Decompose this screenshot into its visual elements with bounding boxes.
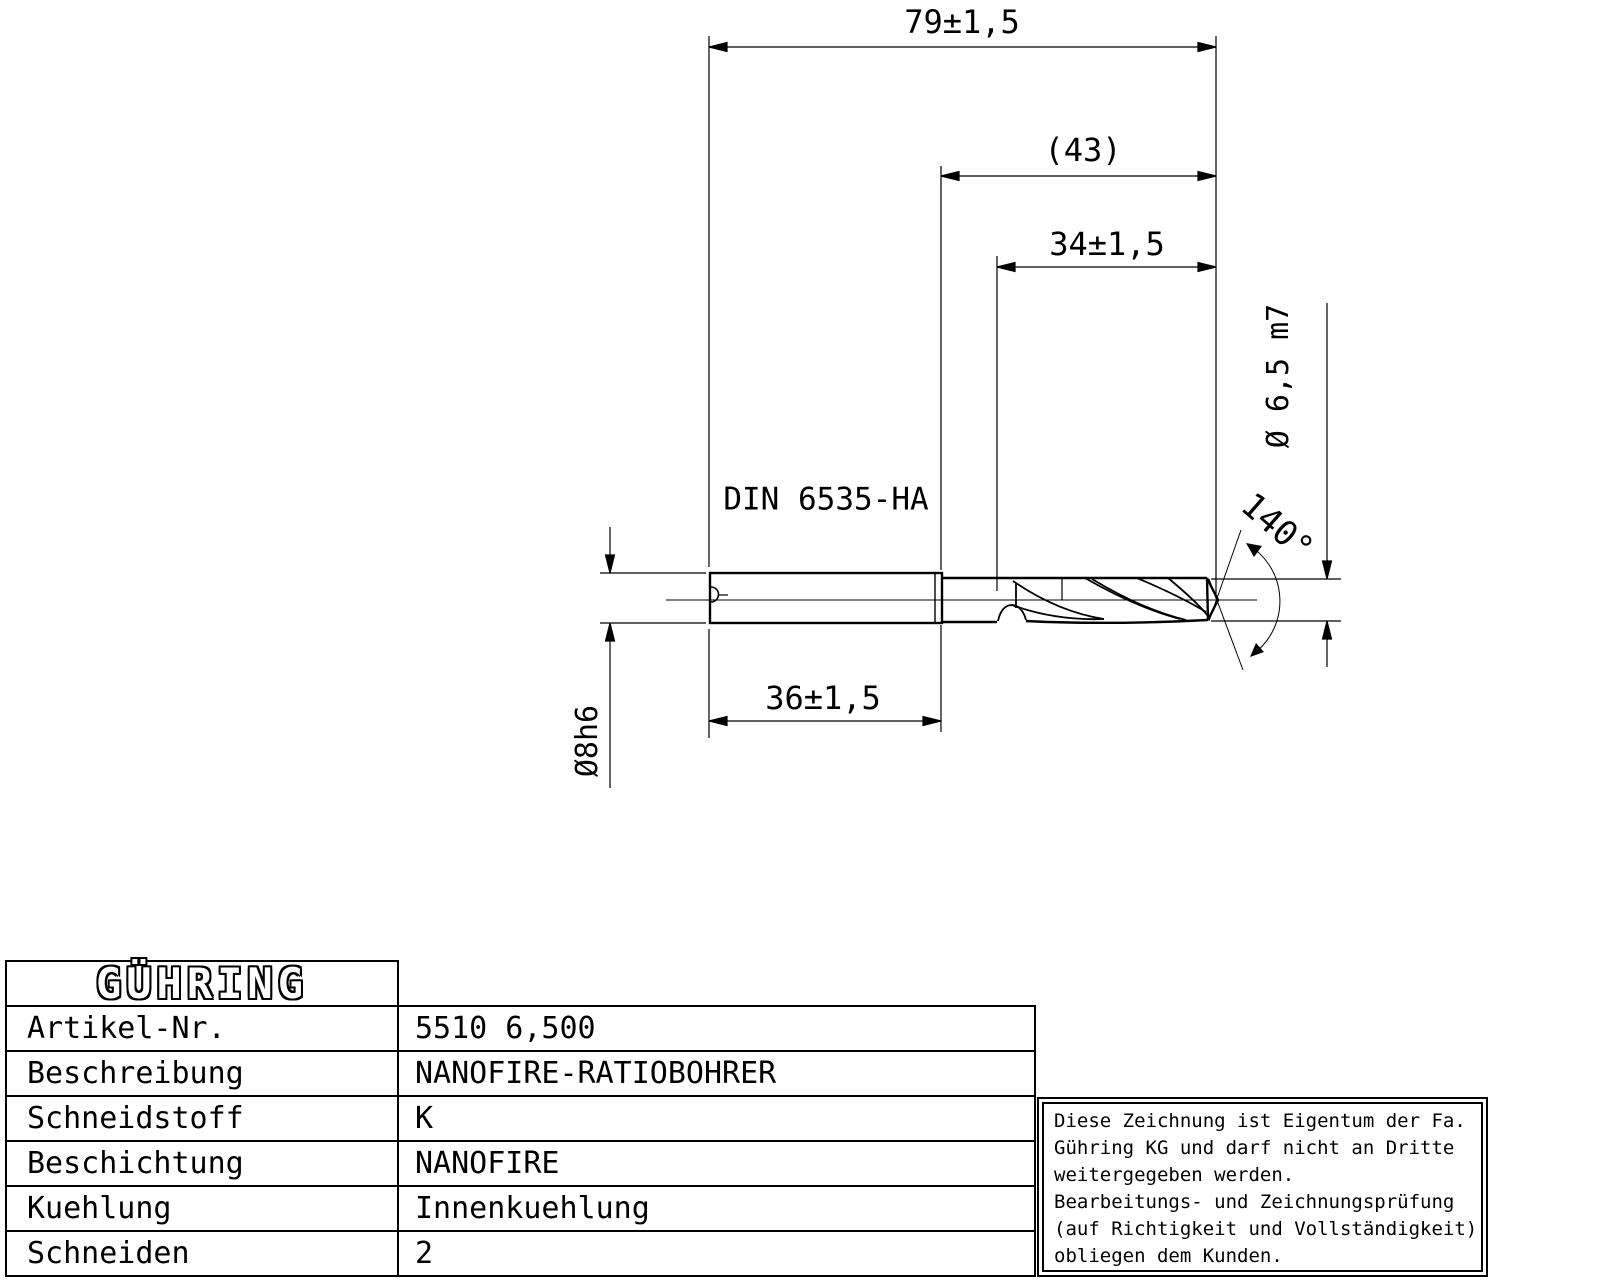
logo-cell: GÜHRING — [5, 960, 399, 1005]
note-line: weitergegeben werden. — [1054, 1162, 1481, 1189]
dim-label-shank-length: 36±1,5 — [765, 682, 881, 714]
note-line: Bearbeitungs- und Zeichnungsprüfung — [1054, 1189, 1481, 1216]
table-row: Kuehlung Innenkuehlung — [7, 1185, 1034, 1230]
guehring-logo: GÜHRING — [96, 959, 308, 1008]
row-label: Beschreibung — [7, 1052, 399, 1095]
legal-note-inner: Diese Zeichnung ist Eigentum der Fa. Güh… — [1042, 1102, 1483, 1272]
row-value: K — [399, 1097, 1034, 1140]
dimension-cutting-dia — [1323, 303, 1332, 667]
dim-label-cutting-diameter: Ø 6,5 m7 — [1264, 304, 1294, 449]
dim-label-flute-length: 34±1,5 — [1049, 228, 1165, 260]
shank-standard-label: DIN 6535-HA — [723, 485, 928, 516]
spec-table: Artikel-Nr. 5510 6,500 Beschreibung NANO… — [5, 1005, 1036, 1277]
row-value: 5510 6,500 — [399, 1007, 1034, 1050]
dimension-34 — [997, 263, 1216, 272]
extension-lines — [600, 36, 1341, 738]
dimension-43 — [941, 172, 1216, 181]
dimension-36 — [709, 717, 941, 726]
dimension-79 — [709, 43, 1216, 52]
row-value: NANOFIRE — [399, 1142, 1034, 1185]
table-row: Artikel-Nr. 5510 6,500 — [7, 1007, 1034, 1050]
legal-note-box: Diese Zeichnung ist Eigentum der Fa. Güh… — [1037, 1097, 1488, 1277]
table-row: Schneidstoff K — [7, 1095, 1034, 1140]
note-line: Gühring KG und darf nicht an Dritte — [1054, 1135, 1481, 1162]
note-line: obliegen dem Kunden. — [1054, 1243, 1481, 1270]
note-line: (auf Richtigkeit und Vollständigkeit) — [1054, 1216, 1481, 1243]
table-row: Beschichtung NANOFIRE — [7, 1140, 1034, 1185]
row-value: NANOFIRE-RATIOBOHRER — [399, 1052, 1034, 1095]
row-label: Beschichtung — [7, 1142, 399, 1185]
dim-label-overall-length: 79±1,5 — [904, 6, 1020, 38]
drill-flutes — [1012, 578, 1208, 620]
technical-drawing-sheet: 79±1,5 (43) 34±1,5 DIN 6535-HA 36±1,5 Ø8… — [0, 0, 1600, 1280]
table-row: Schneiden 2 — [7, 1230, 1034, 1275]
drill-drawing — [0, 0, 1600, 950]
row-label: Schneiden — [7, 1232, 399, 1275]
note-line: Diese Zeichnung ist Eigentum der Fa. — [1054, 1108, 1481, 1135]
table-row: Beschreibung NANOFIRE-RATIOBOHRER — [7, 1050, 1034, 1095]
row-label: Kuehlung — [7, 1187, 399, 1230]
row-label: Artikel-Nr. — [7, 1007, 399, 1050]
row-value: 2 — [399, 1232, 1034, 1275]
row-value: Innenkuehlung — [399, 1187, 1034, 1230]
dim-label-shank-diameter: Ø8h6 — [573, 705, 603, 777]
dimension-shank-dia — [606, 527, 615, 788]
row-label: Schneidstoff — [7, 1097, 399, 1140]
dim-label-reference-length: (43) — [1044, 134, 1121, 166]
